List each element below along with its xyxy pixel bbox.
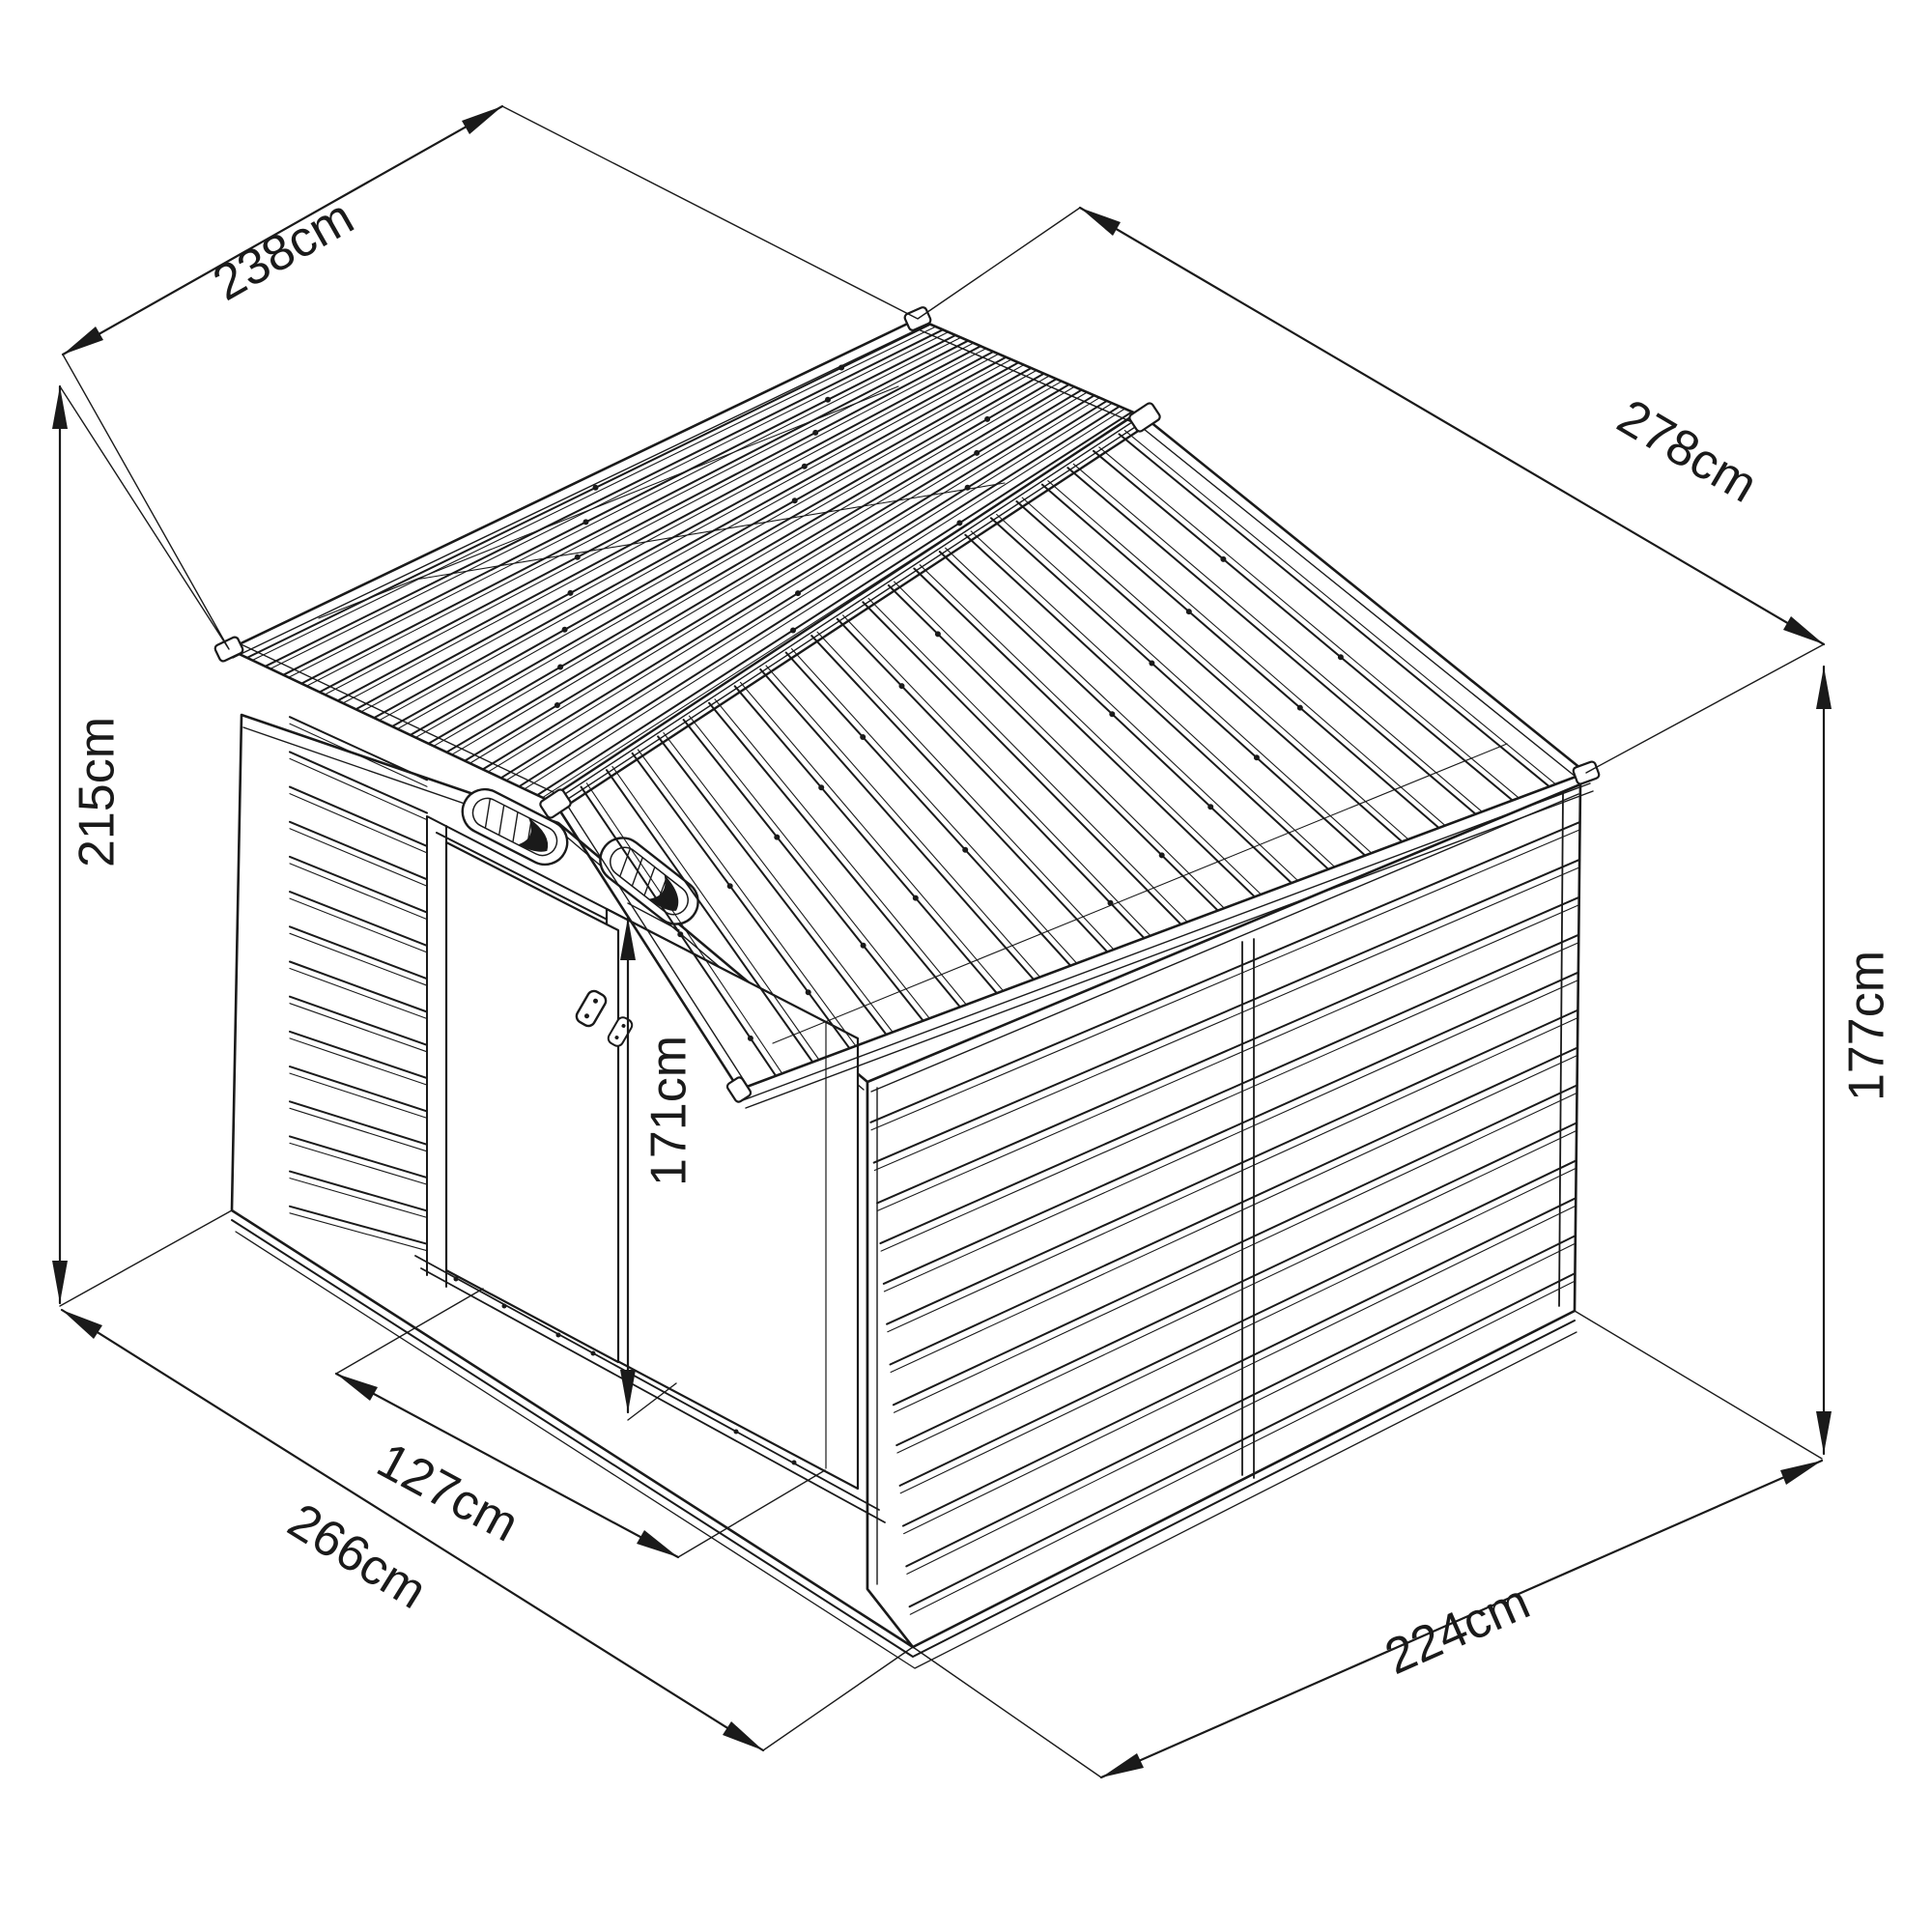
- right-side-wall: [867, 784, 1580, 1647]
- label-roof-width: 238cm: [204, 188, 362, 311]
- dim-line-roof-slope-length: [1080, 208, 1824, 644]
- label-base-side-depth: 224cm: [1378, 1574, 1538, 1686]
- diagram-canvas: 238cm 278cm 215cm 177cm 171cm 127cm 266c…: [0, 0, 1932, 1932]
- shed-dimension-diagram: 238cm 278cm 215cm 177cm 171cm 127cm 266c…: [0, 0, 1932, 1932]
- label-roof-slope-length: 278cm: [1608, 389, 1767, 514]
- door-left-leaf: [446, 842, 618, 1362]
- label-door-height: 171cm: [641, 1036, 697, 1186]
- label-wall-height: 177cm: [1839, 951, 1895, 1101]
- label-base-front-width: 266cm: [278, 1492, 436, 1620]
- label-total-height: 215cm: [70, 717, 126, 867]
- label-door-width: 127cm: [368, 1433, 527, 1553]
